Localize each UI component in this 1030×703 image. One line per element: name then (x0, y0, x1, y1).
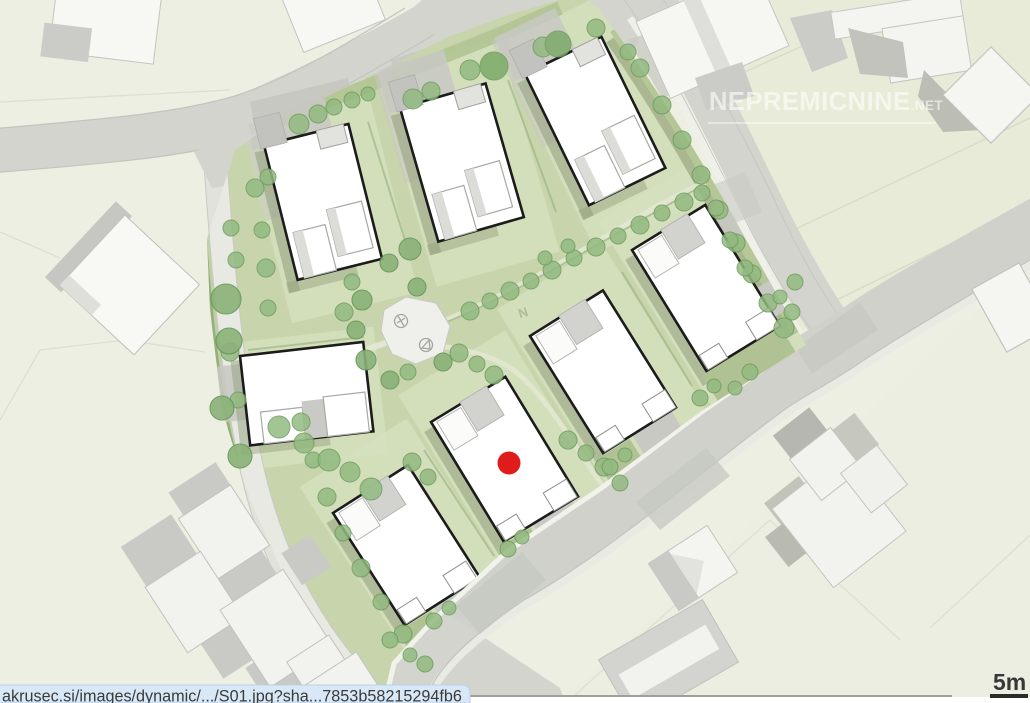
svg-text:akrusec.si/images/dynamic/.../: akrusec.si/images/dynamic/.../S01.jpg?sh… (2, 688, 462, 703)
svg-text:NEPREMICNINE.NET: NEPREMICNINE.NET (709, 88, 944, 116)
svg-text:5m: 5m (993, 669, 1026, 695)
